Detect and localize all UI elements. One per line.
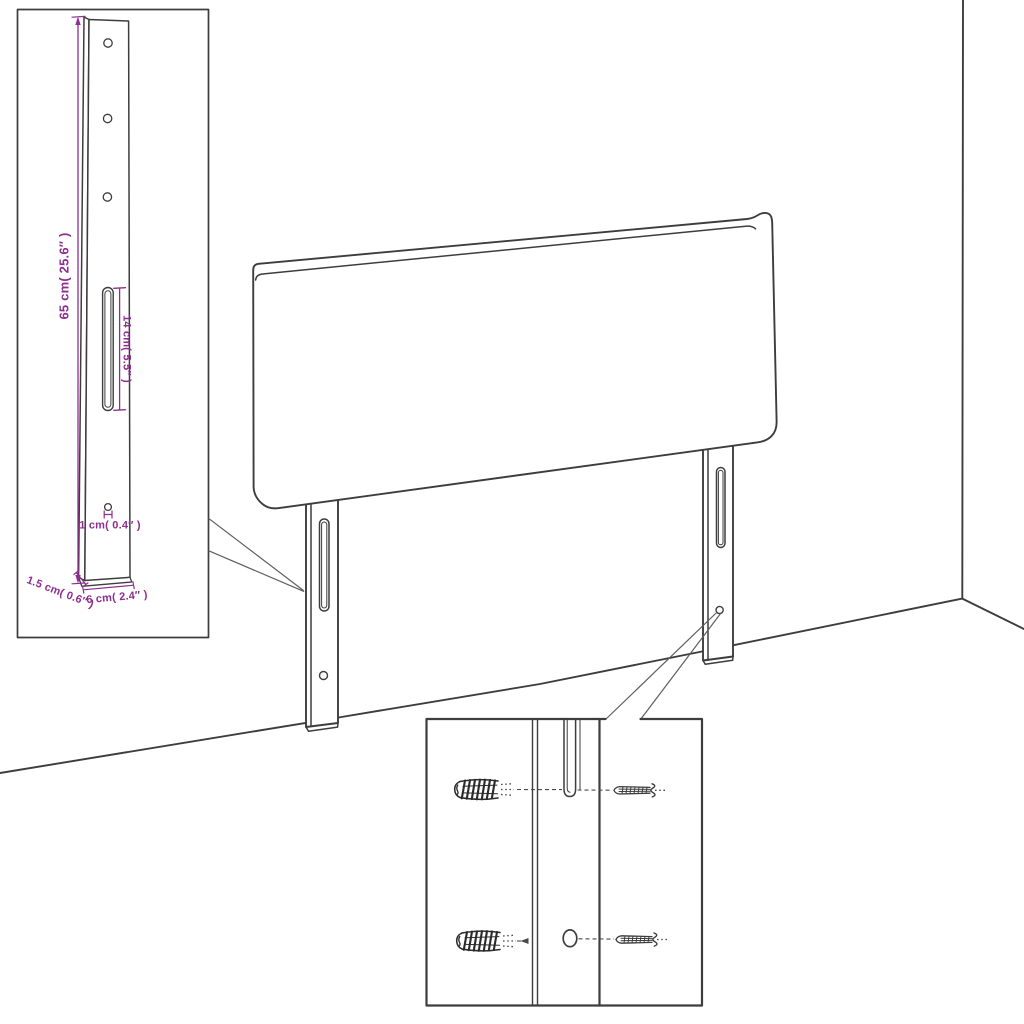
callout-lines-bracket-to-left-leg: [209, 518, 305, 591]
floor-line-right: [962, 599, 1024, 629]
floor-line-behind-right-leg: [734, 599, 963, 646]
bracket-detail-inset: [18, 10, 209, 638]
dim-label-bracket-height: 65 cm( 25.6″ ): [58, 232, 71, 319]
headboard-panel: [253, 213, 776, 508]
dim-label-hole-diameter: 1 cm( 0.4″ ): [79, 521, 140, 532]
floor-line-middle: [339, 652, 703, 718]
dim-label-slot-length: 14 cm( 5.5″ ): [121, 315, 132, 383]
diagram-canvas: [0, 0, 1024, 1024]
left-leg: [306, 491, 338, 732]
screw-detail-inset: [427, 719, 703, 1006]
diagram-page: 65 cm( 25.6″ ) 14 cm( 5.5″ ) 1 cm( 0.4″ …: [0, 0, 1024, 1024]
wall-corner-vertical-line: [962, 0, 963, 599]
bracket-front-face: [85, 20, 130, 581]
floor-line-left: [0, 723, 305, 773]
headboard: [253, 213, 776, 508]
